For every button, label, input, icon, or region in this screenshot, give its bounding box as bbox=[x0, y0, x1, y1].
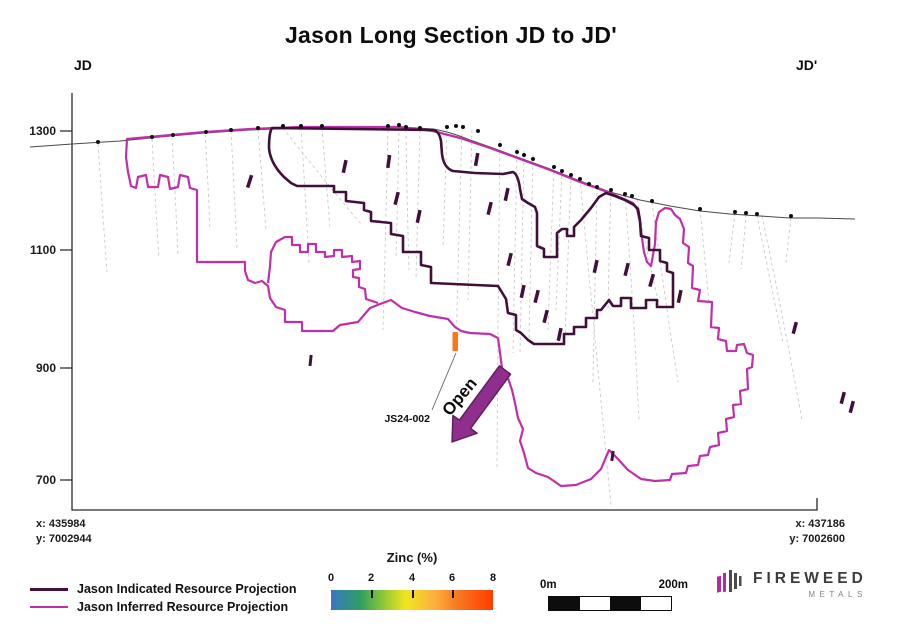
legend-item-indicated: Jason Indicated Resource Projection bbox=[30, 580, 297, 598]
scalebar-segment bbox=[610, 597, 641, 610]
legend-label-inferred: Jason Inferred Resource Projection bbox=[77, 600, 288, 614]
section-end-left: JD bbox=[74, 57, 92, 73]
scalebar bbox=[548, 596, 672, 611]
y-axis-tick-900: 900 bbox=[12, 361, 56, 375]
colorbar-tick-2: 2 bbox=[359, 572, 383, 584]
corner-left-northing: y: 7002944 bbox=[36, 532, 92, 547]
legend-label-indicated: Jason Indicated Resource Projection bbox=[77, 582, 297, 596]
colorbar-tickmark-6 bbox=[452, 590, 454, 598]
y-axis-tick-1100: 1100 bbox=[12, 243, 56, 257]
colorbar-tick-6: 6 bbox=[440, 572, 464, 584]
drill-traces bbox=[98, 127, 802, 505]
corner-left-easting: x: 435984 bbox=[36, 517, 92, 532]
legend-item-inferred: Jason Inferred Resource Projection bbox=[30, 598, 297, 616]
figure-title: Jason Long Section JD to JD' bbox=[0, 22, 902, 49]
inferred-line-swatch bbox=[30, 606, 68, 608]
colorbar-tick-8: 8 bbox=[481, 572, 505, 584]
intercept-bars bbox=[246, 153, 855, 461]
fireweed-logo-text: FIREWEED METALS bbox=[753, 570, 867, 599]
section-end-right: JD' bbox=[796, 57, 817, 73]
scalebar-segment bbox=[549, 597, 580, 610]
scalebar-segment bbox=[641, 597, 672, 610]
fireweed-logo: FIREWEED METALS bbox=[712, 566, 867, 599]
colorbar-tick-0: 0 bbox=[319, 572, 343, 584]
scalebar-segment bbox=[580, 597, 611, 610]
colorbar-title: Zinc (%) bbox=[331, 550, 493, 565]
highlight-intercept-bar bbox=[453, 332, 459, 351]
legend: Jason Indicated Resource Projection Jaso… bbox=[30, 580, 297, 616]
colorbar-tick-4: 4 bbox=[400, 572, 424, 584]
drill-collar-dots bbox=[96, 123, 793, 218]
logo-name: FIREWEED bbox=[753, 570, 867, 588]
corner-coords-left: x: 435984 y: 7002944 bbox=[36, 517, 92, 547]
drillhole-label: JS24-002 bbox=[368, 413, 430, 425]
scalebar-label-left: 0m bbox=[540, 579, 557, 591]
indicated-line-swatch bbox=[30, 588, 68, 591]
figure-jason-long-section: Jason Long Section JD to JD' JD JD' 1300… bbox=[0, 0, 902, 638]
corner-right-northing: y: 7002600 bbox=[745, 532, 845, 547]
colorbar-tickmark-2 bbox=[371, 590, 373, 598]
y-axis-tick-1300: 1300 bbox=[12, 124, 56, 138]
y-axis-tick-700: 700 bbox=[12, 473, 56, 487]
scalebar-label-right: 200m bbox=[628, 579, 688, 591]
logo-subtitle: METALS bbox=[753, 590, 867, 599]
corner-coords-right: x: 437186 y: 7002600 bbox=[745, 517, 845, 547]
colorbar-tickmark-4 bbox=[412, 590, 414, 598]
topography-line bbox=[30, 127, 855, 219]
corner-right-easting: x: 437186 bbox=[745, 517, 845, 532]
fireweed-logo-icon bbox=[712, 566, 746, 598]
